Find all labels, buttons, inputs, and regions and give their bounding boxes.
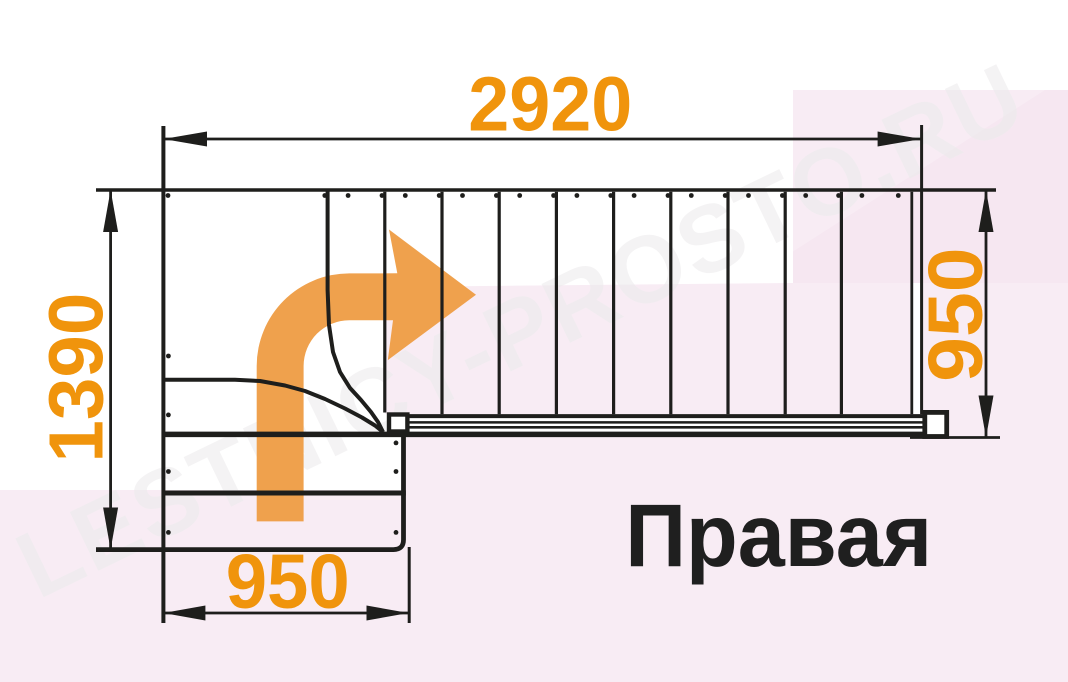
svg-text:950: 950 bbox=[226, 539, 350, 625]
svg-text:950: 950 bbox=[913, 247, 999, 382]
svg-text:1390: 1390 bbox=[34, 293, 120, 463]
svg-text:Правая: Правая bbox=[625, 485, 932, 585]
svg-text:2920: 2920 bbox=[468, 62, 632, 148]
